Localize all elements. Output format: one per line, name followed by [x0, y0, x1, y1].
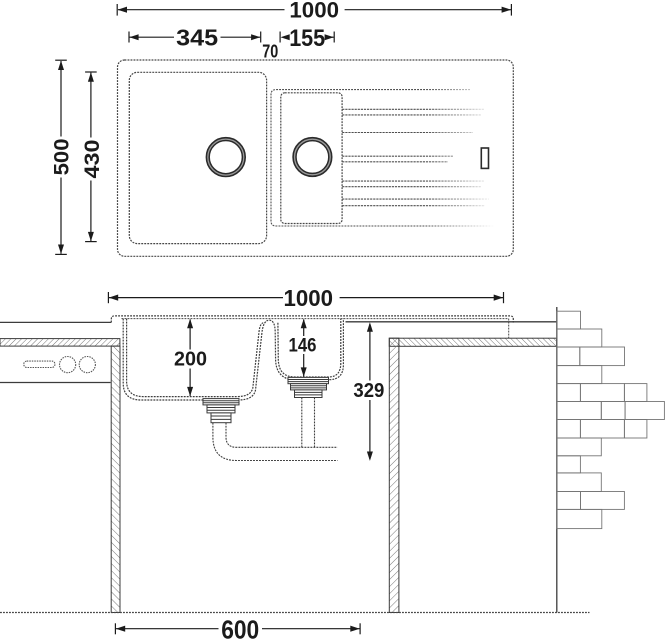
svg-text:200: 200 [174, 348, 207, 371]
svg-text:155: 155 [289, 25, 325, 52]
svg-text:430: 430 [79, 140, 104, 179]
svg-text:146: 146 [289, 335, 317, 357]
svg-text:345: 345 [176, 25, 218, 51]
svg-text:329: 329 [353, 379, 384, 402]
svg-text:1000: 1000 [284, 285, 334, 311]
svg-text:600: 600 [221, 615, 259, 640]
svg-text:500: 500 [49, 138, 74, 175]
svg-text:70: 70 [262, 41, 278, 61]
svg-text:1000: 1000 [289, 0, 339, 23]
